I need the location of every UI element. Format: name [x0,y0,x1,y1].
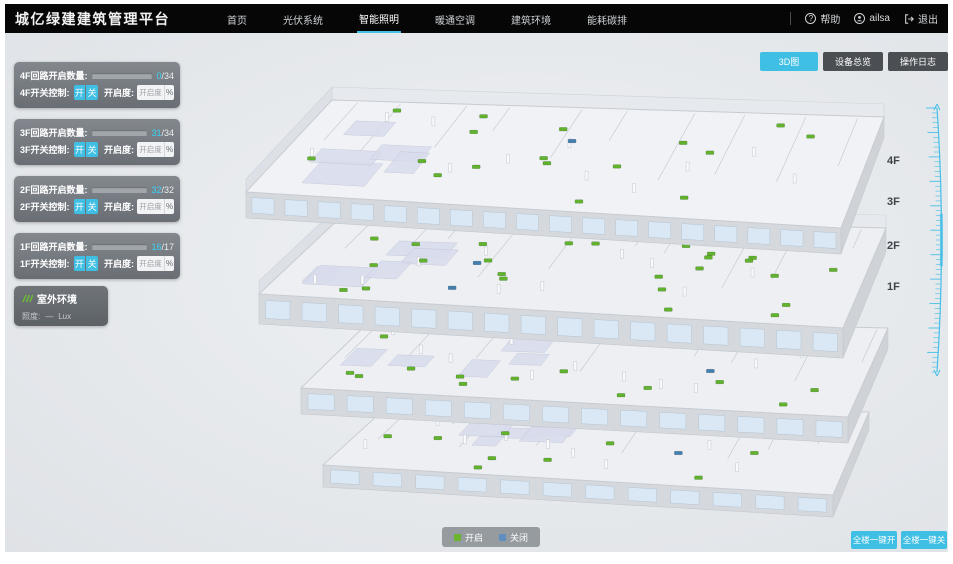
percent-button[interactable]: % [164,142,174,157]
circuit-row: 4F回路开启数量: 0/34 [20,67,174,84]
user-menu[interactable]: ailsa [854,13,890,24]
outdoor-env-icon [22,294,33,303]
legend-on-item: 开启 [454,531,483,544]
floor-scale-label-4f[interactable]: 4F [887,155,909,167]
floor-on-button[interactable]: 开 [74,85,86,100]
help-button[interactable]: ? 帮助 [805,11,840,26]
legend-on-swatch [454,534,461,541]
help-label: 帮助 [820,11,840,26]
switch-row: 3F开关控制: 开 关 开启度: % [20,141,174,158]
floor-scale-label-1f[interactable]: 1F [887,281,909,293]
dim-level-input[interactable] [137,85,164,100]
logout-icon [904,14,914,24]
whole-building-actions: 全楼一键开 全楼一键关 [851,531,947,549]
dim-level-label: 开启度: [104,86,134,99]
dim-level-label: 开启度: [104,257,134,270]
user-name: ailsa [869,13,890,24]
floor-on-button[interactable]: 开 [74,256,86,271]
all-off-button[interactable]: 全楼一键关 [901,531,947,549]
view-toolbar: 3D图 设备总览 操作日志 [760,52,948,71]
floor-off-button[interactable]: 关 [86,199,98,214]
circuit-count-label: 1F回路开启数量: [20,240,88,253]
circuit-count-label: 3F回路开启数量: [20,126,88,139]
floor-scale-label-2f[interactable]: 2F [887,240,909,252]
illuminance-value: — [45,312,53,321]
circuit-count-value: 16/17 [151,242,174,252]
switch-row: 1F开关控制: 开 关 开启度: % [20,255,174,272]
nav-separator [790,12,791,25]
app-window: 城亿绿建建筑管理平台 首页 光伏系统 智能照明 暖通空调 建筑环境 能耗碳排 ?… [5,4,948,552]
outdoor-env-title: 室外环境 [37,291,77,306]
illuminance-unit: Lux [58,312,71,321]
circuit-row: 3F回路开启数量: 31/34 [20,124,174,141]
floor-off-button[interactable]: 关 [86,142,98,157]
app-title: 城亿绿建建筑管理平台 [15,9,170,29]
circuit-row: 2F回路开启数量: 32/32 [20,181,174,198]
outdoor-env-panel: 室外环境 照度: — Lux [14,286,108,326]
device-overview-button[interactable]: 设备总览 [823,52,883,71]
circuit-progress-bar [92,73,153,79]
circuit-count-value: 32/32 [151,185,174,195]
nav-item-energy-carbon[interactable]: 能耗碳排 [585,5,629,32]
main-content: 3D图 设备总览 操作日志 4F回路开启数量: 0/34 4F开关控制: 开 关… [5,33,948,552]
dim-level-label: 开启度: [104,200,134,213]
floor-on-button[interactable]: 开 [74,199,86,214]
floor-off-button[interactable]: 关 [86,85,98,100]
dim-level-input[interactable] [137,142,164,157]
floor-on-button[interactable]: 开 [74,142,86,157]
dim-level-label: 开启度: [104,143,134,156]
status-legend: 开启 关闭 [442,527,540,547]
floor-panel-2f: 2F回路开启数量: 32/32 2F开关控制: 开 关 开启度: % [14,176,180,222]
percent-button[interactable]: % [164,199,174,214]
circuit-count-label: 2F回路开启数量: [20,183,88,196]
circuit-row: 1F回路开启数量: 16/17 [20,238,174,255]
operation-log-button[interactable]: 操作日志 [888,52,948,71]
nav-item-pv-system[interactable]: 光伏系统 [281,5,325,32]
circuit-count-value: 31/34 [151,128,174,138]
logout-label: 退出 [918,11,938,26]
navbar-right: ? 帮助 ailsa 退出 [790,11,938,26]
switch-control-label: 3F开关控制: [20,143,70,156]
percent-button[interactable]: % [164,256,174,271]
floor-panel-1f: 1F回路开启数量: 16/17 1F开关控制: 开 关 开启度: % [14,233,180,279]
circuit-progress-bar [92,244,148,250]
nav-item-building-env[interactable]: 建筑环境 [509,5,553,32]
legend-on-label: 开启 [465,531,483,544]
dim-level-input[interactable] [137,199,164,214]
circuit-progress-bar [92,130,148,136]
switch-control-label: 4F开关控制: [20,86,70,99]
floor-zoom-ruler[interactable] [915,103,948,383]
building-3d-view[interactable] [5,33,948,552]
all-on-button[interactable]: 全楼一键开 [851,531,897,549]
main-nav: 首页 光伏系统 智能照明 暖通空调 建筑环境 能耗碳排 [225,4,629,33]
floor-scale-label-3f[interactable]: 3F [887,196,909,208]
switch-row: 2F开关控制: 开 关 开启度: % [20,198,174,215]
dim-level-input[interactable] [137,256,164,271]
floor-panel-3f: 3F回路开启数量: 31/34 3F开关控制: 开 关 开启度: % [14,119,180,165]
help-icon: ? [805,13,816,24]
circuit-count-label: 4F回路开启数量: [20,69,88,82]
switch-control-label: 1F开关控制: [20,257,70,270]
circuit-progress-bar [92,187,148,193]
legend-off-swatch [499,534,506,541]
switch-control-label: 2F开关控制: [20,200,70,213]
nav-item-hvac[interactable]: 暖通空调 [433,5,477,32]
user-icon [854,13,865,24]
floor-panel-4f: 4F回路开启数量: 0/34 4F开关控制: 开 关 开启度: % [14,62,180,108]
floor-off-button[interactable]: 关 [86,256,98,271]
illuminance-label: 照度: [22,311,40,322]
circuit-count-value: 0/34 [156,71,174,81]
top-navbar: 城亿绿建建筑管理平台 首页 光伏系统 智能照明 暖通空调 建筑环境 能耗碳排 ?… [5,4,948,33]
screen: 城亿绿建建筑管理平台 首页 光伏系统 智能照明 暖通空调 建筑环境 能耗碳排 ?… [0,0,953,564]
legend-off-item: 关闭 [499,531,528,544]
view-3d-button[interactable]: 3D图 [760,52,818,71]
nav-item-smart-lighting[interactable]: 智能照明 [357,4,401,33]
percent-button[interactable]: % [164,85,174,100]
switch-row: 4F开关控制: 开 关 开启度: % [20,84,174,101]
logout-button[interactable]: 退出 [904,11,938,26]
nav-item-home[interactable]: 首页 [225,5,249,32]
legend-off-label: 关闭 [510,531,528,544]
